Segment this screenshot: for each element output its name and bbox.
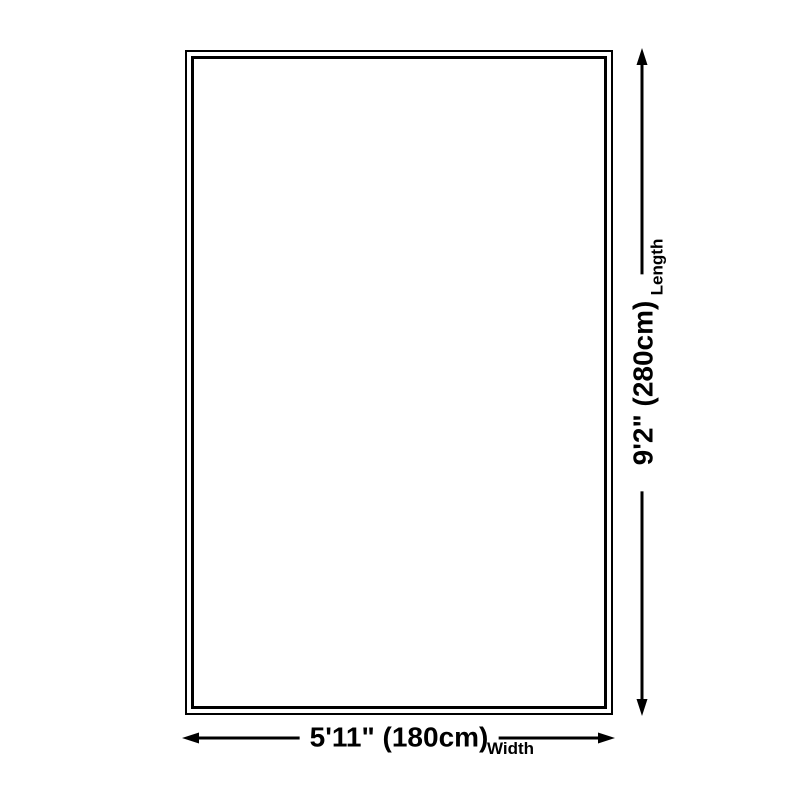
arrow-head-down-icon <box>637 699 648 716</box>
length-axis-label: Length <box>649 239 668 296</box>
arrow-head-right-icon <box>598 733 615 744</box>
length-dimension-value: 9'2" (280cm) <box>629 275 660 492</box>
arrow-head-up-icon <box>637 48 648 65</box>
width-dimension-value: 5'11" (180cm) <box>300 723 499 754</box>
arrow-head-left-icon <box>182 733 199 744</box>
dimension-arrows <box>0 0 800 800</box>
size-diagram-canvas: 9'2" (280cm) Length 5'11" (180cm) Width <box>0 0 800 800</box>
width-axis-label: Width <box>487 740 534 759</box>
